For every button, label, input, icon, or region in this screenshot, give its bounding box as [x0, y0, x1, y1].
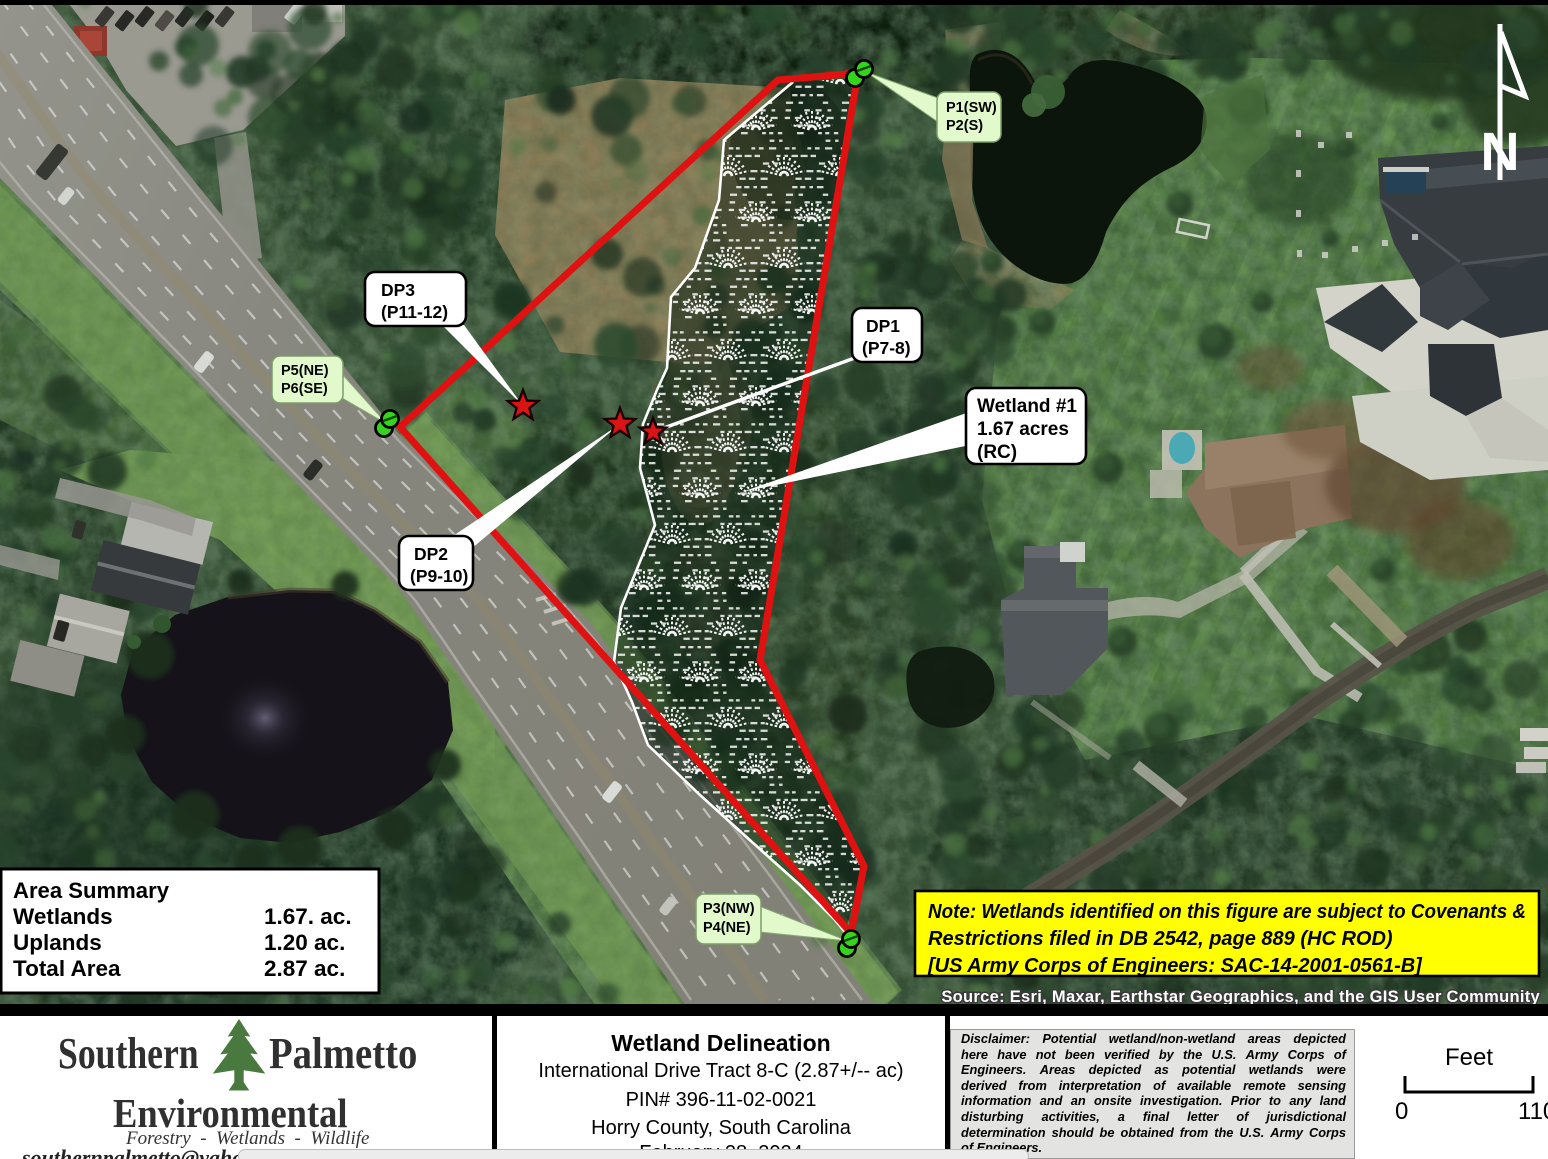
svg-text:P2(S): P2(S) — [946, 118, 983, 134]
svg-text:P6(SE): P6(SE) — [281, 381, 328, 397]
svg-text:Restrictions filed in DB 2542,: Restrictions filed in DB 2542, page 889 … — [928, 928, 1393, 950]
svg-text:P3(NW): P3(NW) — [703, 901, 755, 917]
svg-text:(P11-12): (P11-12) — [381, 302, 448, 322]
svg-text:N: N — [1481, 122, 1520, 182]
svg-text:Area Summary: Area Summary — [13, 878, 169, 903]
svg-text:Note: Wetlands identified on t: Note: Wetlands identified on this figure… — [928, 901, 1526, 923]
svg-text:Wetlands: Wetlands — [13, 904, 113, 929]
svg-text:(P9-10): (P9-10) — [410, 566, 468, 586]
svg-text:1.20 ac.: 1.20 ac. — [264, 930, 345, 955]
svg-text:Total Area: Total Area — [13, 956, 121, 981]
svg-text:[US Army Corps of Engineers: S: [US Army Corps of Engineers: SAC-14-2001… — [927, 955, 1423, 977]
svg-text:(RC): (RC) — [977, 442, 1017, 463]
svg-text:1.67. ac.: 1.67. ac. — [264, 904, 352, 929]
svg-text:Wetland #1: Wetland #1 — [977, 396, 1077, 417]
svg-text:P5(NE): P5(NE) — [281, 363, 329, 379]
svg-text:DP3: DP3 — [381, 280, 415, 300]
svg-text:Source: Esri, Maxar, Earthstar: Source: Esri, Maxar, Earthstar Geographi… — [941, 988, 1540, 1006]
svg-text:DP1: DP1 — [866, 316, 900, 336]
svg-text:DP2: DP2 — [414, 544, 448, 564]
svg-text:Uplands: Uplands — [13, 930, 102, 955]
svg-text:1.67 acres: 1.67 acres — [977, 419, 1069, 440]
svg-text:(P7-8): (P7-8) — [862, 338, 911, 358]
svg-text:2.87 ac.: 2.87 ac. — [264, 956, 345, 981]
svg-text:P1(SW): P1(SW) — [946, 100, 997, 116]
svg-text:P4(NE): P4(NE) — [703, 920, 751, 936]
